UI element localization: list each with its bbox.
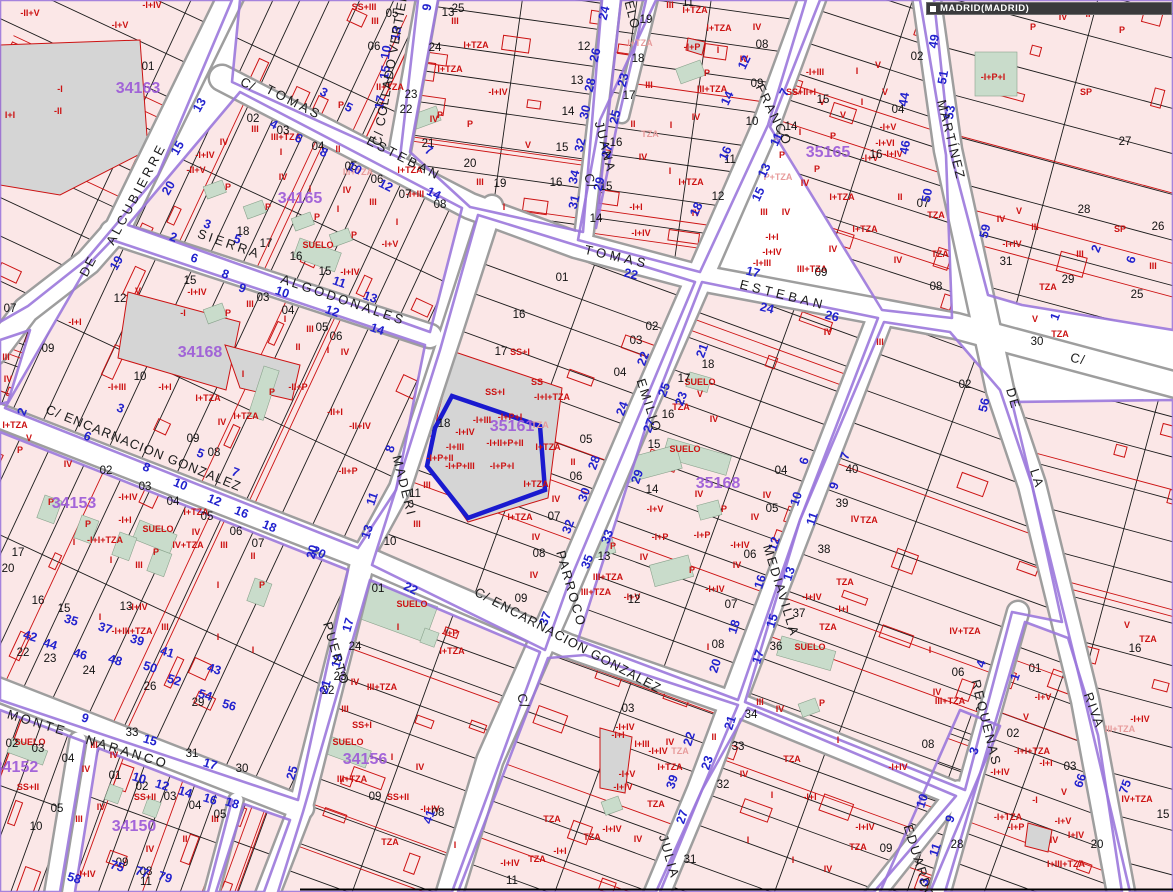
building-annotation: I+I	[5, 110, 15, 120]
building-annotation: I+TZA	[657, 762, 683, 772]
parcel-number: 09	[369, 791, 382, 803]
parcel-number: 01	[1029, 663, 1042, 675]
building-annotation: IV	[416, 762, 425, 772]
building-annotation: IV	[552, 494, 561, 504]
parcel-number: 03	[257, 292, 270, 304]
building-annotation: -I+IV	[500, 858, 519, 868]
block-number: 35168	[696, 475, 741, 492]
building-annotation: IV	[1050, 835, 1059, 845]
building-annotation: -I+P+III	[445, 461, 475, 471]
building-annotation: -I+IV	[142, 0, 161, 10]
building-annotation: -II	[54, 106, 62, 116]
parcel-number: 40	[846, 464, 859, 476]
building-annotation: I	[747, 835, 750, 845]
building-annotation: P	[689, 565, 695, 575]
building-annotation: IV+TZA	[172, 540, 204, 550]
building-annotation: IV	[776, 704, 785, 714]
building-annotation: -I+I+TZA	[87, 535, 124, 545]
building-annotation: II	[250, 551, 255, 561]
block-number: 35161	[490, 418, 535, 435]
parcel-number: 09	[880, 843, 893, 855]
building-annotation: IV	[824, 327, 833, 337]
parcel-number: 39	[836, 498, 849, 510]
parcel-number: 16	[870, 149, 883, 161]
parcel-number: 19	[494, 178, 507, 190]
building-annotation: I	[337, 204, 340, 214]
building-annotation: -II+P	[338, 466, 357, 476]
parcel-number: 16	[32, 595, 45, 607]
building-annotation: TZA	[528, 854, 546, 864]
building-annotation: III+TZA	[367, 682, 398, 692]
parcel-number: 03	[630, 335, 643, 347]
parcel-number: 06	[744, 549, 757, 561]
building-annotation: -I+V	[619, 769, 636, 779]
building-annotation: IV	[751, 512, 760, 522]
building-annotation: V	[26, 433, 32, 443]
building-annotation: II	[295, 342, 300, 352]
parcel-number: 16	[290, 251, 303, 263]
building-annotation: SP	[1080, 87, 1092, 97]
building-annotation: -I+III	[806, 67, 824, 77]
parcel-number: 16	[513, 309, 526, 321]
building-annotation: -I+P+I	[981, 72, 1006, 82]
building-annotation: I+TZA	[678, 177, 704, 187]
building-annotation: -I+I	[835, 604, 848, 614]
location-pin-icon	[930, 6, 936, 12]
building-annotation: IV	[639, 152, 648, 162]
building-annotation: P	[225, 308, 231, 318]
street-number: 50	[919, 187, 935, 203]
parcel-number: 07	[4, 303, 17, 315]
building-annotation: -I+V	[382, 239, 399, 249]
building-annotation: TZA	[849, 842, 867, 852]
building-annotation: I+TZA	[463, 40, 489, 50]
building-annotation: SS+III	[352, 2, 377, 12]
building-annotation: -II+V	[186, 165, 205, 175]
parcel-number: 17	[623, 90, 636, 102]
building-annotation: -I+IV	[631, 228, 650, 238]
building-annotation: II	[182, 834, 187, 844]
cadastral-map-viewport[interactable]: -I-I+V-II+V-III+I-I+IVIIIII+TZASS+IIIPII…	[0, 0, 1173, 892]
building-annotation: IV	[82, 764, 91, 774]
parcel-number: 15	[1157, 809, 1170, 821]
building-annotation: TZA	[1039, 282, 1057, 292]
building-annotation: III	[135, 560, 143, 570]
building-annotation: SUELO	[302, 240, 333, 250]
building-annotation: TZA	[583, 832, 601, 842]
building-annotation: TZA	[860, 515, 878, 525]
parcel-number: 15	[817, 94, 830, 106]
building-annotation: IV	[997, 214, 1006, 224]
building-annotation: IV	[218, 417, 227, 427]
building-annotation: TZA	[783, 754, 801, 764]
building-annotation: P	[225, 182, 231, 192]
block-number: 34168	[178, 344, 223, 361]
parcel-number: 16	[662, 409, 675, 421]
building-annotation: IV	[530, 570, 539, 580]
building-annotation: III	[760, 207, 768, 217]
street-name: C/	[1069, 350, 1087, 368]
parcel-number: 05	[201, 511, 214, 523]
building-annotation: P	[467, 119, 473, 129]
building-annotation: I+TZA	[233, 411, 259, 421]
parcel-number: 13	[120, 601, 133, 613]
building-annotation: -I+I	[765, 232, 778, 242]
building-annotation: III	[1149, 261, 1157, 271]
parcel-number: 17	[495, 346, 508, 358]
building-annotation: IV	[740, 769, 749, 779]
parcel-number: 16	[1129, 643, 1142, 655]
block-number: 34156	[343, 751, 388, 768]
parcel-number: 03	[1064, 761, 1077, 773]
building-annotation: SS+I	[485, 387, 505, 397]
building-annotation: P	[17, 445, 23, 455]
building-annotation: IV	[343, 185, 352, 195]
building-annotation: SUELO	[794, 642, 825, 652]
building-annotation: P	[1030, 22, 1036, 32]
parcel-number: 11	[682, 0, 694, 9]
parcel-number: 08	[208, 447, 221, 459]
parcel-number: 17	[678, 373, 691, 385]
building-annotation: -I+VI	[875, 138, 894, 148]
building-annotation: IV	[634, 834, 643, 844]
parcel-number: 24	[349, 641, 362, 653]
building-annotation: -I+P+I	[490, 461, 515, 471]
parcel-number: 08	[756, 39, 769, 51]
building-annotation: TZA	[641, 129, 659, 139]
parcel-number: 15	[648, 439, 661, 451]
building-annotation: III+TZA	[935, 696, 966, 706]
building-annotation: I	[670, 120, 673, 130]
parcel-number: 10	[384, 536, 397, 548]
parcel-number: 08	[922, 739, 935, 751]
building-annotation: I+III	[634, 739, 649, 749]
parcel-number: 01	[109, 770, 122, 782]
building-annotation: TZA	[931, 249, 949, 259]
parcel-number: 03	[32, 743, 45, 755]
building-annotation: V	[1023, 712, 1029, 722]
parcel-number: 04	[282, 305, 295, 317]
parcel-number: 18	[632, 53, 645, 65]
parcel-number: 04	[189, 800, 202, 812]
building-annotation: IV	[733, 560, 742, 570]
building-annotation: I	[327, 345, 330, 355]
building-annotation: P	[779, 150, 785, 160]
block-number: 34152	[0, 759, 38, 776]
building-annotation: SUELO	[142, 524, 173, 534]
building-annotation: IV	[753, 22, 762, 32]
building-annotation: -I	[1032, 795, 1038, 805]
building-annotation: I	[217, 580, 220, 590]
parcel-number: 33	[732, 741, 745, 753]
parcel-number: 15	[319, 266, 332, 278]
building-annotation: SUELO	[332, 737, 363, 747]
building-annotation: I+TZA	[507, 512, 533, 522]
building-annotation: P	[269, 387, 275, 397]
parcel-number: 14	[646, 484, 659, 496]
block-number: 34165	[278, 190, 323, 207]
building-annotation: IV	[824, 864, 833, 874]
parcel-number: 17	[12, 547, 25, 559]
building-annotation: IV	[146, 844, 155, 854]
parcel-number: 05	[580, 434, 593, 446]
building-annotation: V	[135, 286, 141, 296]
building-annotation: III	[161, 622, 169, 632]
building-annotation: III	[220, 540, 228, 550]
parcel-number: 10	[134, 371, 147, 383]
building-annotation: I	[391, 752, 394, 762]
building-annotation: III	[251, 124, 259, 134]
building-annotation: -I+TZA	[994, 812, 1023, 822]
building-annotation: SUELO	[396, 599, 427, 609]
building-annotation: -I+III	[446, 442, 464, 452]
parcel-number: 08	[712, 639, 725, 651]
building-annotation: III+TZA	[1105, 724, 1136, 734]
building-annotation: P	[1119, 25, 1125, 35]
parcel-number: 07	[548, 511, 561, 523]
building-annotation: III	[1076, 249, 1084, 259]
building-annotation: -I+IV	[648, 746, 667, 756]
building-annotation: -I+IV	[888, 762, 907, 772]
building-annotation: -I+II+P+II	[486, 438, 523, 448]
building-annotation: P	[351, 230, 357, 240]
building-annotation: I+TZA	[535, 442, 561, 452]
parcel-number: 15	[184, 275, 197, 287]
building-annotation: I+TZA	[627, 38, 653, 48]
building-annotation: -II+IV	[349, 421, 371, 431]
parcel-number: 13	[598, 551, 611, 563]
building-annotation: I	[837, 735, 840, 745]
building-annotation: P	[259, 580, 265, 590]
building-annotation: III+TZA	[593, 572, 624, 582]
building-annotation: IV	[829, 244, 838, 254]
block-number: 34153	[52, 495, 97, 512]
building-annotation: V	[1032, 314, 1038, 324]
parcel-number: 22	[400, 104, 413, 116]
parcel-number: 11	[506, 875, 518, 887]
building-annotation: III+TZA	[581, 587, 612, 597]
parcel-number: 04	[167, 496, 180, 508]
building-annotation: -I+V	[880, 122, 897, 132]
building-annotation: III	[371, 16, 379, 26]
building-annotation: V	[1061, 787, 1067, 797]
parcel-number: 05	[51, 803, 64, 815]
building-annotation: -I+IV	[195, 150, 214, 160]
parcel-number: 30	[236, 763, 249, 775]
building-annotation: III	[756, 697, 764, 707]
building-annotation: I	[929, 645, 932, 655]
parcel-number: 13	[442, 7, 455, 19]
building-annotation: I	[73, 537, 76, 547]
building-annotation: -I+IV	[762, 247, 781, 257]
building-annotation: -I+I	[158, 382, 171, 392]
building-annotation: III	[413, 519, 421, 529]
building-annotation: I+TZA	[829, 192, 855, 202]
parcel-number: 02	[6, 738, 19, 750]
building-annotation: I	[771, 790, 774, 800]
building-annotation: P	[153, 547, 159, 557]
parcel-number: 27	[1119, 136, 1132, 148]
street-number: 46	[897, 139, 913, 155]
building-annotation: III	[246, 299, 254, 309]
building-annotation: IV	[782, 207, 791, 217]
parcel-number: 34	[745, 709, 758, 721]
building-annotation: V	[525, 140, 531, 150]
parcel-number: 03	[622, 703, 635, 715]
building-annotation: P	[819, 698, 825, 708]
building-annotation: -I+P	[652, 532, 669, 542]
building-annotation: -I	[57, 84, 63, 94]
building-annotation: I	[669, 166, 672, 176]
building-annotation: I+TZA	[195, 393, 221, 403]
building-annotation: P	[314, 212, 320, 222]
building-annotation: TZA	[836, 577, 854, 587]
parcel-number: 23	[44, 653, 57, 665]
building-annotation: P	[830, 131, 836, 141]
parcel-number: 12	[712, 191, 725, 203]
building-annotation: -I+I+TZA	[534, 392, 571, 402]
parcel-number: 05	[766, 503, 779, 515]
building-annotation: TZA	[819, 622, 837, 632]
building-annotation: I	[252, 645, 255, 655]
building-annotation: II	[570, 457, 575, 467]
building-annotation: -I+IV	[990, 767, 1009, 777]
building-annotation: -I+I	[553, 846, 566, 856]
building-annotation: II	[630, 119, 635, 129]
building-annotation: I+TZA	[2, 420, 28, 430]
building-annotation: V	[1124, 620, 1130, 630]
building-annotation: SS+II	[134, 792, 156, 802]
map-svg[interactable]: -I-I+V-II+V-III+I-I+IVIIIII+TZASS+IIIPII…	[0, 0, 1173, 892]
building-annotation: I	[242, 369, 245, 379]
parcel-number: 20	[464, 158, 477, 170]
building-annotation: -I+IV	[802, 592, 821, 602]
parcel-number: 09	[42, 343, 55, 355]
building-annotation: P	[814, 164, 820, 174]
building-annotation: V	[882, 87, 888, 97]
parcel-number: 03	[277, 125, 290, 137]
parcel-number: 23	[405, 89, 418, 101]
street-number: 44	[896, 91, 912, 107]
building-annotation: III	[423, 480, 431, 490]
building-annotation: I	[503, 202, 506, 212]
building-annotation: -I+IV	[855, 822, 874, 832]
building-annotation: SUELO	[669, 444, 700, 454]
building-annotation: -I+I	[118, 515, 131, 525]
parcel-number: 26	[1152, 221, 1165, 233]
parcel-number: 16	[550, 177, 563, 189]
building-annotation: TZA	[381, 837, 399, 847]
parcel-number: 02	[959, 379, 972, 391]
parcel-number: 01	[142, 61, 155, 73]
parcel-number: 02	[911, 51, 924, 63]
building-annotation: V	[840, 110, 846, 120]
parcel-number: 08	[930, 281, 943, 293]
building-annotation: III	[2, 352, 10, 362]
building-annotation: P	[437, 110, 443, 120]
building-annotation: I	[792, 855, 795, 865]
parcel-number: 31	[186, 748, 199, 760]
parcel-number: 29	[1062, 274, 1075, 286]
building-annotation: I+TZA	[439, 646, 465, 656]
building-annotation: -I+IV	[602, 824, 621, 834]
building-annotation: SS+II	[387, 792, 409, 802]
building-annotation: V	[1016, 206, 1022, 216]
building-annotation: -I+IV	[187, 287, 206, 297]
parcel-number: 07	[725, 599, 738, 611]
building-annotation: IV	[894, 255, 903, 265]
building-annotation: III	[666, 0, 674, 10]
parcel-number: 02	[646, 321, 659, 333]
building-annotation: IV	[801, 178, 810, 188]
building-annotation: I+TZA	[706, 23, 732, 33]
building-annotation: IV	[279, 172, 288, 182]
building-annotation: TZA	[1139, 634, 1157, 644]
building-annotation: IV+TZA	[1121, 794, 1153, 804]
building-annotation: -I+I	[611, 730, 624, 740]
parcel-number: 38	[818, 544, 831, 556]
building-annotation: -I+III	[108, 382, 126, 392]
building-annotation: -I+I+TZA	[1014, 746, 1051, 756]
building-annotation: III	[341, 704, 349, 714]
building-annotation: V	[697, 389, 703, 399]
parcel-number: 20	[1091, 839, 1104, 851]
parcel-number: 13	[571, 75, 584, 87]
building-annotation: I	[799, 127, 802, 137]
parcel-number: 12	[114, 293, 127, 305]
building-annotation: -I+IV	[705, 584, 724, 594]
building-annotation: I	[707, 642, 710, 652]
building-annotation: P	[704, 68, 710, 78]
building-annotation: IV	[97, 802, 106, 812]
building-annotation: IV	[220, 137, 229, 147]
parcel-number: 04	[775, 465, 788, 477]
building-annotation: -I+I	[803, 792, 816, 802]
parcel-number: 22	[17, 647, 30, 659]
building-annotation: SP	[1114, 224, 1126, 234]
parcel-number: 28	[951, 839, 964, 851]
building-annotation: -I+P	[442, 628, 459, 638]
parcel-number: 01	[556, 272, 569, 284]
parcel-number: 14	[590, 213, 603, 225]
parcel-number: 08	[533, 548, 546, 560]
parcel-number: 05	[214, 809, 227, 821]
building-annotation: IV	[851, 514, 860, 524]
building-annotation: TZA	[927, 210, 945, 220]
parcel-number: 10	[746, 116, 759, 128]
parcel-number: 06	[952, 667, 965, 679]
building-annotation: TZA	[543, 814, 561, 824]
parcel-number: 02	[247, 113, 260, 125]
parcel-number: 07	[399, 189, 412, 201]
building-annotation: -II+I	[327, 407, 343, 417]
building-annotation: I	[454, 840, 457, 850]
building-annotation: P	[265, 202, 271, 212]
parcel-number: 31	[684, 854, 697, 866]
building-annotation: IV	[532, 532, 541, 542]
block-number: 34150	[112, 818, 157, 835]
building-annotation: -I+IV	[118, 492, 137, 502]
building-annotation: SS+II	[17, 782, 39, 792]
building-annotation: I+III+TZA	[1047, 859, 1086, 869]
parcel-number: 15	[556, 142, 569, 154]
map-canvas[interactable]: -I-I+V-II+V-III+I-I+IVIIIII+TZASS+IIIPII…	[0, 0, 1173, 892]
building-annotation: IV	[4, 374, 13, 384]
building-annotation: III	[876, 337, 884, 347]
building-annotation: -I+P	[694, 530, 711, 540]
building-annotation: SS+I	[510, 347, 530, 357]
building-annotation: III	[1031, 222, 1039, 232]
